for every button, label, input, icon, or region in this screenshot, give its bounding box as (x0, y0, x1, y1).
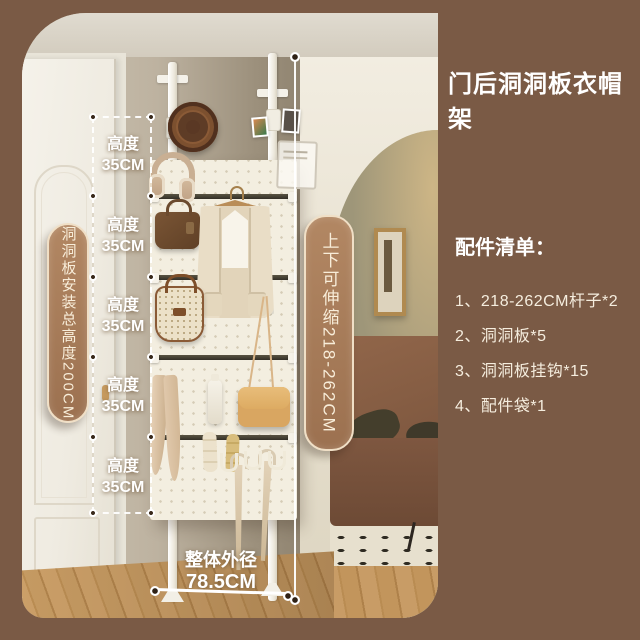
width-dot-left (150, 586, 160, 596)
dashed-line-left (92, 117, 94, 513)
accessory-item: 1、218-262CM杆子*2 (455, 287, 618, 311)
height-label-1: 高度 35CM (97, 135, 149, 177)
measure-dot (89, 433, 97, 441)
measure-dot (147, 273, 155, 281)
measure-dot (89, 113, 97, 121)
height-label-4: 高度 35CM (97, 376, 149, 418)
page-title: 门后洞洞板衣帽架 (448, 64, 640, 134)
measure-dot (147, 509, 155, 517)
measure-dot (147, 433, 155, 441)
measure-dot (147, 113, 155, 121)
height-label-3: 高度 35CM (97, 296, 149, 338)
accessory-item: 4、配件袋*1 (455, 392, 547, 416)
height-label-2: 高度 35CM (97, 216, 149, 258)
measure-dot (89, 509, 97, 517)
dashed-line-top (92, 116, 152, 118)
total-height-pill: 洞洞板安装总高度200CM (47, 223, 89, 423)
accessories-heading: 配件清单： (455, 231, 555, 260)
measure-dot-top (290, 52, 300, 62)
measure-dot (89, 192, 97, 200)
accessory-item: 2、洞洞板*5 (455, 322, 547, 346)
outer-width-label: 整体外径 78.5CM (153, 551, 289, 593)
extension-range-pill: 上下可伸缩218-262CM (304, 215, 354, 451)
measure-dot (147, 353, 155, 361)
measure-dot (89, 353, 97, 361)
dashed-line-bottom (92, 512, 152, 514)
measure-dot (147, 192, 155, 200)
dashed-line-right (150, 117, 152, 513)
extension-measure-line (294, 57, 296, 600)
product-infographic: 高度 35CM 高度 35CM 高度 35CM 高度 35CM 高度 35CM … (0, 0, 640, 640)
height-label-5: 高度 35CM (97, 457, 149, 499)
accessory-item: 3、洞洞板挂钩*15 (455, 357, 589, 381)
measure-dot (89, 273, 97, 281)
width-dot-right (283, 591, 293, 601)
